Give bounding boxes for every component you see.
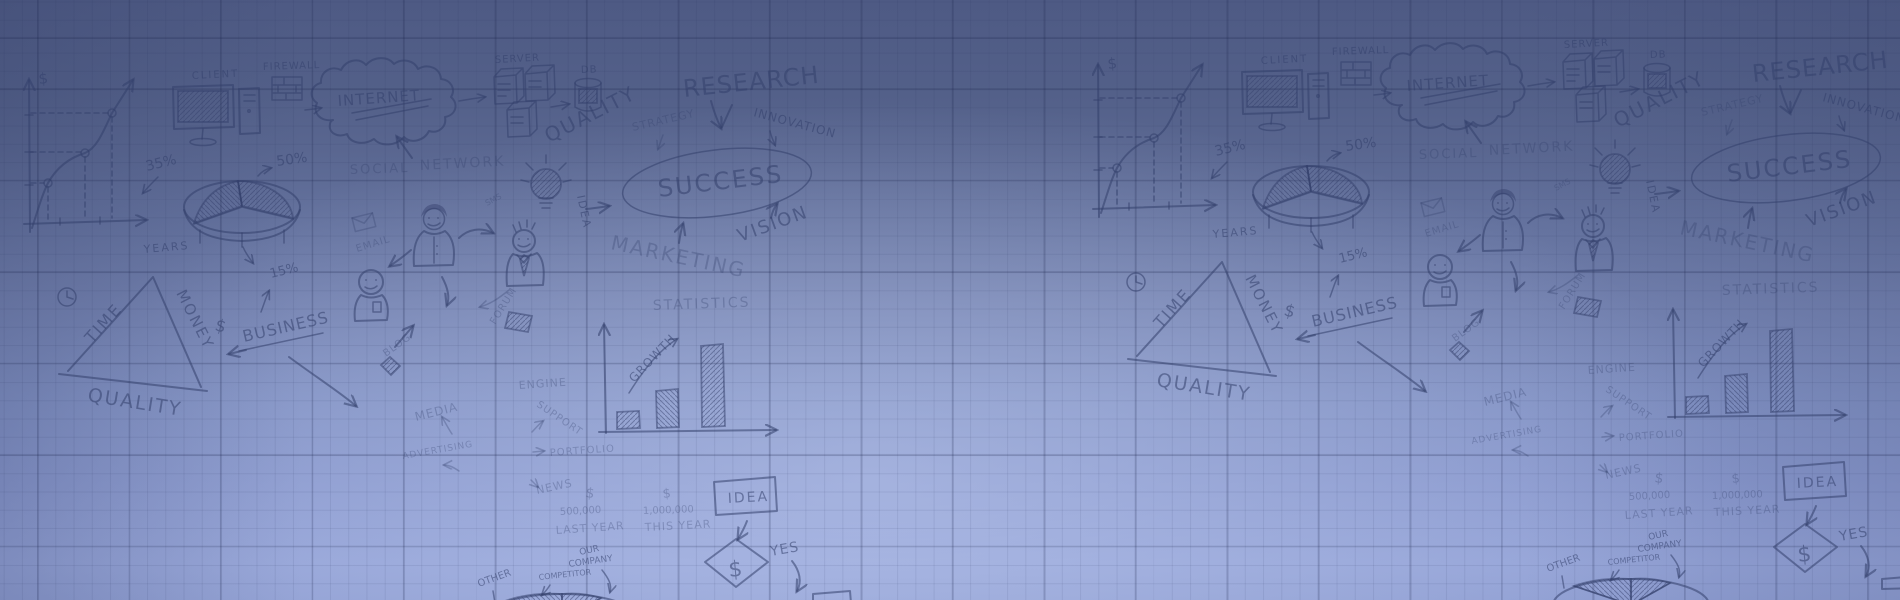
doodle-tile-left — [24, 53, 851, 600]
doodle-layer: $ YEARS 35% 50% 15% TIME — [0, 0, 1900, 600]
doodle-tile-right — [1093, 38, 1900, 600]
doodle-banner-background: $ YEARS 35% 50% 15% TIME — [0, 0, 1900, 600]
